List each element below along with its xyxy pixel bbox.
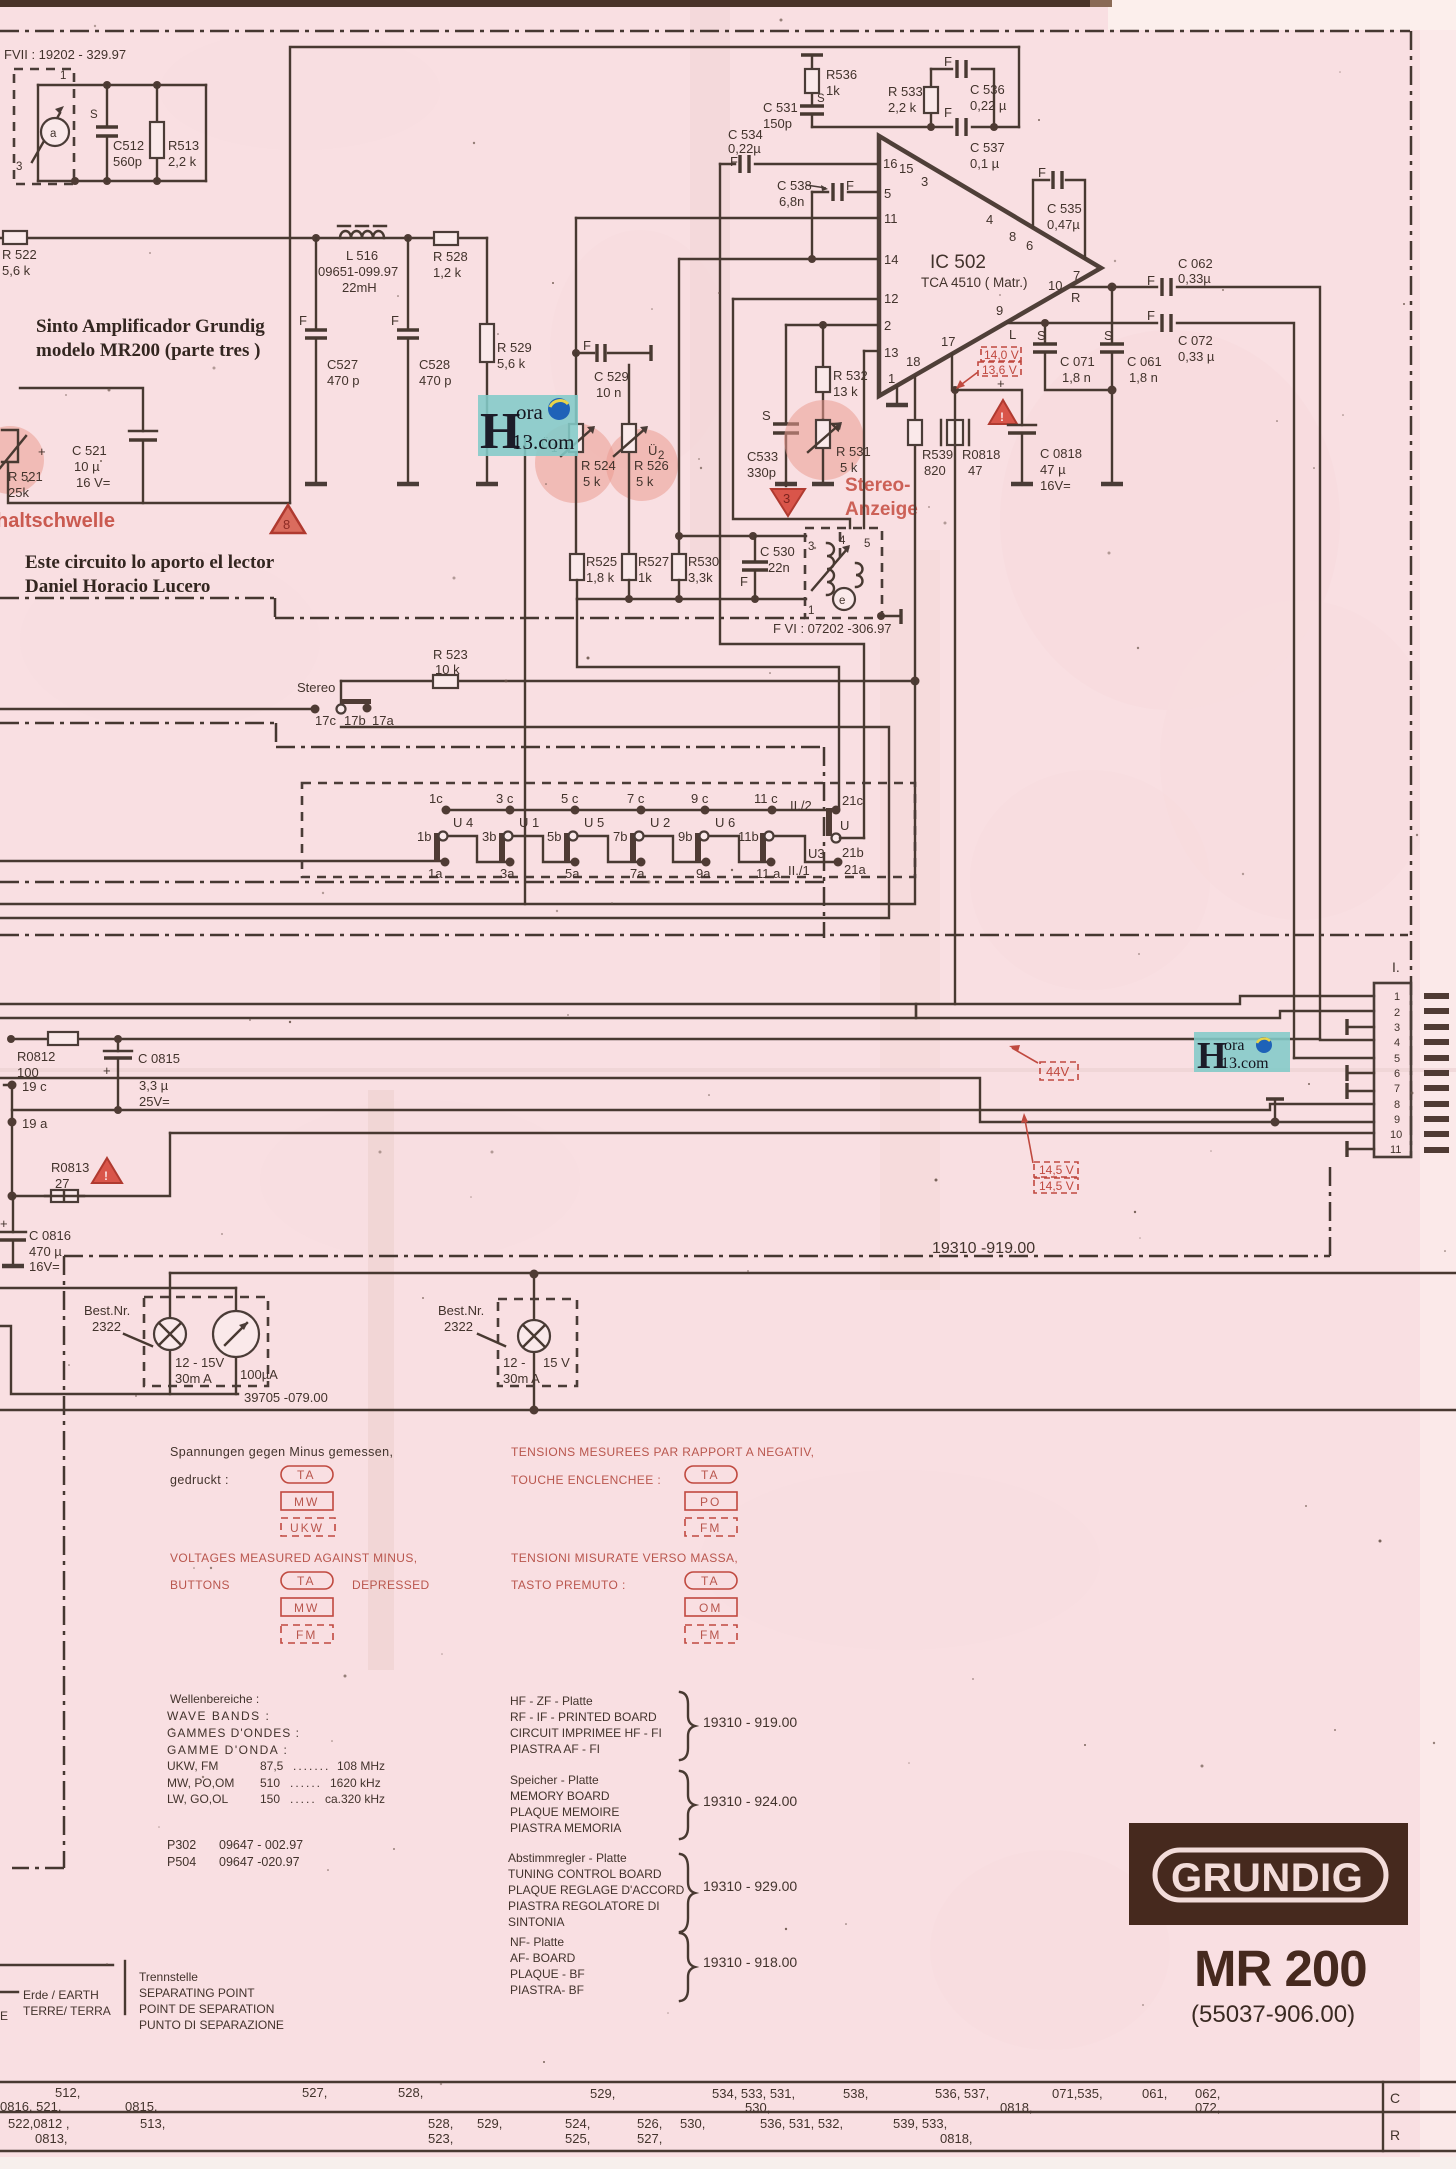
svg-text:HF - ZF - Platte: HF - ZF - Platte <box>510 1694 593 1708</box>
svg-text:534, 533, 531,: 534, 533, 531, <box>712 2086 795 2101</box>
svg-text:PIASTRA MEMORIA: PIASTRA MEMORIA <box>510 1821 621 1835</box>
svg-text:GAMME D'ONDA :: GAMME D'ONDA : <box>167 1743 288 1757</box>
svg-text:18: 18 <box>906 354 920 369</box>
svg-text:529,: 529, <box>590 2086 615 2101</box>
svg-text:21c: 21c <box>842 793 863 808</box>
svg-text:39705 -079.00: 39705 -079.00 <box>244 1390 328 1405</box>
svg-text:TA: TA <box>297 1468 315 1482</box>
svg-text:PIASTRA- BF: PIASTRA- BF <box>510 1983 584 1997</box>
svg-text:WAVE BANDS :: WAVE BANDS : <box>167 1709 270 1723</box>
svg-text:3: 3 <box>808 541 814 553</box>
svg-text:072,: 072, <box>1195 2100 1220 2115</box>
svg-text:12 - 15V: 12 - 15V <box>175 1355 224 1370</box>
svg-text:1c: 1c <box>429 791 443 806</box>
svg-text:0816, 521,: 0816, 521, <box>0 2099 61 2114</box>
svg-text:I.: I. <box>1392 959 1400 975</box>
svg-text:2322: 2322 <box>92 1319 121 1334</box>
svg-text:11 c: 11 c <box>754 791 778 806</box>
svg-text:3: 3 <box>921 174 928 189</box>
svg-text:1a: 1a <box>428 866 443 881</box>
svg-text:TA: TA <box>297 1574 315 1588</box>
svg-text:13,6 V: 13,6 V <box>982 363 1017 377</box>
svg-text:44V: 44V <box>1046 1064 1069 1079</box>
svg-text:S: S <box>762 408 771 423</box>
svg-text:F: F <box>391 313 399 328</box>
svg-text:524,: 524, <box>565 2116 590 2131</box>
svg-text:C533: C533 <box>747 449 778 464</box>
svg-text:17b: 17b <box>344 713 366 728</box>
svg-text:14: 14 <box>884 252 898 267</box>
svg-text:10 µ: 10 µ <box>74 459 100 474</box>
svg-text:4: 4 <box>986 212 993 227</box>
svg-text:13 k: 13 k <box>833 384 858 399</box>
svg-text:C 535: C 535 <box>1047 201 1082 216</box>
svg-text:14,5 V: 14,5 V <box>1039 1163 1074 1177</box>
svg-text:ca.320 kHz: ca.320 kHz <box>325 1792 385 1806</box>
svg-text:6,8n: 6,8n <box>779 194 804 209</box>
svg-text:F: F <box>299 313 307 328</box>
svg-text:Abstimmregler - Platte: Abstimmregler - Platte <box>508 1851 627 1865</box>
svg-text:9 c: 9 c <box>691 791 709 806</box>
svg-text:19310 - 919.00: 19310 - 919.00 <box>703 1714 797 1730</box>
svg-text:C 0818: C 0818 <box>1040 446 1082 461</box>
svg-text:Trennstelle: Trennstelle <box>139 1970 198 1984</box>
svg-text:TCA 4510 ( Matr.): TCA 4510 ( Matr.) <box>921 275 1028 290</box>
svg-text:1k: 1k <box>826 83 840 98</box>
svg-text:DEPRESSED: DEPRESSED <box>352 1578 430 1592</box>
svg-text:10: 10 <box>1048 278 1062 293</box>
svg-text:536, 537,: 536, 537, <box>935 2086 989 2101</box>
svg-text:530,: 530, <box>745 2100 770 2115</box>
svg-text:7 c: 7 c <box>627 791 645 806</box>
svg-text:R539: R539 <box>922 447 953 462</box>
svg-text:TERRE/ TERRA: TERRE/ TERRA <box>23 2004 111 2018</box>
svg-text:0,22 µ: 0,22 µ <box>970 98 1007 113</box>
svg-text:09647 -020.97: 09647 -020.97 <box>219 1855 300 1869</box>
svg-text:ora: ora <box>516 400 543 424</box>
svg-text:1,2 k: 1,2 k <box>433 265 462 280</box>
svg-text:R 526: R 526 <box>634 458 669 473</box>
svg-text:3,3k: 3,3k <box>688 570 713 585</box>
svg-text:528,: 528, <box>398 2085 423 2100</box>
svg-text:C512: C512 <box>113 138 144 153</box>
svg-text:RF - IF - PRINTED BOARD: RF - IF - PRINTED BOARD <box>510 1710 657 1724</box>
svg-text:22n: 22n <box>768 560 790 575</box>
svg-text:F: F <box>846 178 854 193</box>
svg-text:R 529: R 529 <box>497 340 532 355</box>
svg-text:Speicher - Platte: Speicher - Platte <box>510 1773 599 1787</box>
svg-text:C 072: C 072 <box>1178 333 1213 348</box>
svg-text:09647 - 002.97: 09647 - 002.97 <box>219 1838 303 1852</box>
svg-text:PIASTRA AF - FI: PIASTRA AF - FI <box>510 1742 600 1756</box>
svg-text:......: ...... <box>290 1776 322 1790</box>
svg-text:11b: 11b <box>738 829 759 844</box>
svg-text:1b: 1b <box>417 829 431 844</box>
svg-text:4: 4 <box>1394 1037 1400 1049</box>
svg-text:11: 11 <box>884 211 898 226</box>
svg-text:19 c: 19 c <box>22 1079 47 1094</box>
svg-text:TASTO PREMUTO :: TASTO PREMUTO : <box>511 1578 626 1592</box>
svg-text:526,: 526, <box>637 2116 662 2131</box>
svg-text:GRUNDIG: GRUNDIG <box>1171 1856 1363 1900</box>
svg-text:Erde / EARTH: Erde / EARTH <box>23 1988 99 2002</box>
svg-text:F: F <box>1147 273 1155 288</box>
svg-text:TA: TA <box>701 1468 719 1482</box>
svg-text:3: 3 <box>783 491 790 506</box>
svg-text:2: 2 <box>1394 1007 1400 1019</box>
svg-text:GAMMES D'ONDES :: GAMMES D'ONDES : <box>167 1726 300 1740</box>
svg-text:C 530: C 530 <box>760 544 795 559</box>
svg-text:CIRCUIT IMPRIMEE HF - FI: CIRCUIT IMPRIMEE HF - FI <box>510 1726 662 1740</box>
svg-text:R 523: R 523 <box>433 647 468 662</box>
svg-text:19310 - 918.00: 19310 - 918.00 <box>703 1954 797 1970</box>
svg-text:modelo MR200 (parte tres ): modelo MR200 (parte tres ) <box>36 340 260 361</box>
svg-text:R513: R513 <box>168 138 199 153</box>
svg-text:330p: 330p <box>747 465 776 480</box>
svg-text:10 n: 10 n <box>596 385 621 400</box>
svg-text:Stereo: Stereo <box>297 680 335 695</box>
svg-text:UKW, FM: UKW, FM <box>167 1759 218 1773</box>
svg-text:061,: 061, <box>1142 2086 1167 2101</box>
svg-text:13: 13 <box>884 345 898 360</box>
svg-text:071,535,: 071,535, <box>1052 2086 1103 2101</box>
svg-text:1,8 n: 1,8 n <box>1129 370 1158 385</box>
svg-text:2: 2 <box>884 318 891 333</box>
svg-text:6: 6 <box>1394 1068 1400 1080</box>
svg-text:U 6: U 6 <box>715 815 735 830</box>
svg-text:C 529: C 529 <box>594 369 629 384</box>
svg-text:TENSIONS MESUREES PAR RAPPORT: TENSIONS MESUREES PAR RAPPORT A NEGATIV, <box>511 1445 814 1459</box>
svg-text:F: F <box>944 54 952 69</box>
svg-text:C: C <box>1390 2090 1400 2106</box>
svg-text:Best.Nr.: Best.Nr. <box>84 1303 130 1318</box>
svg-text:C528: C528 <box>419 357 450 372</box>
svg-text:09651-099.97: 09651-099.97 <box>318 264 398 279</box>
svg-text:R 531: R 531 <box>836 444 871 459</box>
svg-text:5: 5 <box>864 538 870 550</box>
svg-text:F: F <box>1038 165 1046 180</box>
svg-text:1620 kHz: 1620 kHz <box>330 1776 381 1790</box>
svg-text:15 V: 15 V <box>543 1355 570 1370</box>
svg-text:16V=: 16V= <box>29 1259 60 1274</box>
svg-text:.......: ....... <box>293 1759 330 1773</box>
svg-text:17: 17 <box>941 334 955 349</box>
svg-text:1,8 k: 1,8 k <box>586 570 615 585</box>
svg-text:+: + <box>38 444 46 459</box>
svg-text:PUNTO DI SEPARAZIONE: PUNTO DI SEPARAZIONE <box>139 2018 284 2032</box>
svg-text:SINTONIA: SINTONIA <box>508 1915 564 1929</box>
svg-text:F: F <box>740 574 748 589</box>
svg-text:+: + <box>103 1063 111 1078</box>
svg-text:19310 - 929.00: 19310 - 929.00 <box>703 1878 797 1894</box>
svg-text:7: 7 <box>1394 1083 1400 1095</box>
svg-text:0813,: 0813, <box>35 2131 68 2146</box>
svg-text:470 p: 470 p <box>327 373 360 388</box>
svg-text:12: 12 <box>884 291 898 306</box>
svg-text:TUNING CONTROL BOARD: TUNING CONTROL BOARD <box>508 1867 662 1881</box>
svg-text:R 524: R 524 <box>581 458 616 473</box>
svg-text:TENSIONI MISURATE VERSO MASSA,: TENSIONI MISURATE VERSO MASSA, <box>511 1551 738 1565</box>
svg-text:Best.Nr.: Best.Nr. <box>438 1303 484 1318</box>
svg-text:S: S <box>1104 328 1113 343</box>
svg-text:529,: 529, <box>477 2116 502 2131</box>
svg-text:528,: 528, <box>428 2116 453 2131</box>
svg-text:C 0815: C 0815 <box>138 1051 180 1066</box>
svg-text:!: ! <box>104 1169 108 1183</box>
svg-text:47 µ: 47 µ <box>1040 462 1066 477</box>
svg-text:C 531: C 531 <box>763 100 798 115</box>
svg-text:8: 8 <box>1394 1099 1400 1111</box>
svg-text:8: 8 <box>1009 229 1016 244</box>
svg-text:0818,: 0818, <box>1000 2100 1033 2115</box>
svg-text:513,: 513, <box>140 2116 165 2131</box>
svg-text:NF- Platte: NF- Platte <box>510 1935 564 1949</box>
svg-text:108 MHz: 108 MHz <box>337 1759 385 1773</box>
svg-text:5,6 k: 5,6 k <box>497 356 526 371</box>
svg-text:PIASTRA REGOLATORE DI: PIASTRA REGOLATORE DI <box>508 1899 660 1913</box>
svg-text:Ü: Ü <box>648 443 657 458</box>
svg-text:2322: 2322 <box>444 1319 473 1334</box>
svg-text:22mH: 22mH <box>342 280 377 295</box>
svg-text:5: 5 <box>1394 1053 1400 1065</box>
svg-text:.....: ..... <box>290 1792 317 1806</box>
svg-text:PLAQUE REGLAGE D'ACCORD: PLAQUE REGLAGE D'ACCORD <box>508 1883 685 1897</box>
svg-text:MR 200: MR 200 <box>1194 1940 1367 1997</box>
svg-text:BUTTONS: BUTTONS <box>170 1578 230 1592</box>
svg-text:87,5: 87,5 <box>260 1759 284 1773</box>
svg-text:R 528: R 528 <box>433 249 468 264</box>
svg-text:14,0 V: 14,0 V <box>984 348 1019 362</box>
svg-text:FM: FM <box>700 1628 721 1642</box>
svg-text:530,: 530, <box>680 2116 705 2131</box>
svg-text:522,0812 ,: 522,0812 , <box>8 2116 69 2131</box>
svg-text:527,: 527, <box>302 2085 327 2100</box>
svg-text:+: + <box>997 376 1005 391</box>
svg-text:U3: U3 <box>808 846 825 861</box>
svg-text:FM: FM <box>296 1628 317 1642</box>
svg-text:L 516: L 516 <box>346 248 378 263</box>
svg-text:UKW: UKW <box>290 1521 324 1535</box>
svg-text:27: 27 <box>55 1176 69 1191</box>
svg-text:Wellenbereiche :: Wellenbereiche : <box>170 1692 259 1706</box>
svg-text:(55037-906.00): (55037-906.00) <box>1191 2001 1355 2028</box>
svg-text:ora: ora <box>1224 1037 1244 1054</box>
svg-text:Stereo-: Stereo- <box>845 475 910 496</box>
svg-text:P504: P504 <box>167 1855 196 1869</box>
svg-text:15: 15 <box>899 161 913 176</box>
svg-text:5a: 5a <box>565 866 580 881</box>
svg-text:1k: 1k <box>638 570 652 585</box>
svg-text:C 521: C 521 <box>72 443 107 458</box>
svg-text:25k: 25k <box>8 485 29 500</box>
svg-text:LW, GO,OL: LW, GO,OL <box>167 1792 228 1806</box>
svg-text:R 532: R 532 <box>833 368 868 383</box>
svg-text:haltschwelle: haltschwelle <box>0 510 115 532</box>
svg-text:R0818: R0818 <box>962 447 1000 462</box>
svg-text:510: 510 <box>260 1776 280 1790</box>
svg-text:3b: 3b <box>482 829 496 844</box>
svg-text:IC 502: IC 502 <box>930 252 986 273</box>
svg-text:1: 1 <box>888 371 895 386</box>
svg-text:R: R <box>1071 290 1080 305</box>
svg-text:e: e <box>839 595 845 607</box>
svg-text:R0812: R0812 <box>17 1049 55 1064</box>
svg-text:C 061: C 061 <box>1127 354 1162 369</box>
svg-text:II./1: II./1 <box>788 863 810 878</box>
svg-text:527,: 527, <box>637 2131 662 2146</box>
svg-text:R: R <box>1390 2127 1400 2143</box>
svg-text:560p: 560p <box>113 154 142 169</box>
svg-text:14,5 V: 14,5 V <box>1039 1179 1074 1193</box>
svg-text:FVII : 19202 - 329.97: FVII : 19202 - 329.97 <box>4 47 126 62</box>
svg-text:0815,: 0815, <box>125 2099 158 2114</box>
svg-text:U: U <box>840 818 849 833</box>
svg-text:C527: C527 <box>327 357 358 372</box>
svg-text:1: 1 <box>1394 991 1400 1003</box>
svg-text:13.com: 13.com <box>1221 1055 1269 1072</box>
svg-text:7: 7 <box>1073 268 1080 283</box>
svg-text:470 p: 470 p <box>419 373 452 388</box>
svg-text:536, 531, 532,: 536, 531, 532, <box>760 2116 843 2131</box>
svg-text:R525: R525 <box>586 554 617 569</box>
svg-text:0,33 µ: 0,33 µ <box>1178 349 1215 364</box>
svg-text:a: a <box>50 128 57 140</box>
svg-text:30m A: 30m A <box>175 1371 212 1386</box>
svg-text:F: F <box>583 338 591 353</box>
svg-text:47: 47 <box>968 463 982 478</box>
svg-text:R530: R530 <box>688 554 719 569</box>
svg-text:9: 9 <box>1394 1114 1400 1126</box>
svg-text:TA: TA <box>701 1574 719 1588</box>
svg-text:5,6 k: 5,6 k <box>2 263 31 278</box>
svg-text:R527: R527 <box>638 554 669 569</box>
svg-text:5 k: 5 k <box>840 460 858 475</box>
svg-text:SEPARATING POINT: SEPARATING POINT <box>139 1986 255 2000</box>
svg-text:3: 3 <box>16 161 22 173</box>
svg-text:C 062: C 062 <box>1178 256 1213 271</box>
svg-text:19 a: 19 a <box>22 1116 48 1131</box>
svg-text:1,8 n: 1,8 n <box>1062 370 1091 385</box>
svg-text:gedruckt :: gedruckt : <box>170 1473 229 1487</box>
svg-text:E: E <box>0 2009 8 2023</box>
svg-text:2,2 k: 2,2 k <box>168 154 197 169</box>
svg-text:L: L <box>1009 327 1016 342</box>
svg-text:25V=: 25V= <box>139 1094 170 1109</box>
svg-text:100µA: 100µA <box>240 1367 278 1382</box>
svg-text:17a: 17a <box>372 713 394 728</box>
svg-text:13.com: 13.com <box>512 430 574 454</box>
svg-text:523,: 523, <box>428 2131 453 2146</box>
svg-text:0,33µ: 0,33µ <box>1178 271 1211 286</box>
svg-text:19310 -919.00: 19310 -919.00 <box>932 1240 1035 1257</box>
svg-text:U 4: U 4 <box>453 815 473 830</box>
svg-text:470 µ: 470 µ <box>29 1244 62 1259</box>
svg-text:AF- BOARD: AF- BOARD <box>510 1951 576 1965</box>
svg-text:F: F <box>944 105 952 120</box>
svg-text:5 k: 5 k <box>636 474 654 489</box>
svg-text:+: + <box>0 1216 8 1231</box>
svg-text:3: 3 <box>1394 1022 1400 1034</box>
svg-text:Spannungen gegen Minus gemesse: Spannungen gegen Minus gemessen, <box>170 1445 393 1459</box>
svg-text:Daniel Horacio Lucero: Daniel Horacio Lucero <box>25 576 210 597</box>
svg-text:MW, PO,OM: MW, PO,OM <box>167 1776 234 1790</box>
svg-text:9b: 9b <box>678 829 692 844</box>
svg-text:U 1: U 1 <box>519 815 539 830</box>
svg-text:150: 150 <box>260 1792 280 1806</box>
svg-text:21b: 21b <box>842 845 864 860</box>
svg-text:10 k: 10 k <box>435 662 460 677</box>
svg-text:S: S <box>90 109 98 121</box>
svg-text:C 536: C 536 <box>970 82 1005 97</box>
svg-text:R536: R536 <box>826 67 857 82</box>
svg-text:VOLTAGES MEASURED AGAINST MINU: VOLTAGES MEASURED AGAINST MINUS, <box>170 1551 418 1565</box>
svg-text:538,: 538, <box>843 2086 868 2101</box>
svg-text:539, 533,: 539, 533, <box>893 2116 947 2131</box>
svg-text:512,: 512, <box>55 2085 80 2100</box>
svg-text:C 0816: C 0816 <box>29 1228 71 1243</box>
svg-text:U 2: U 2 <box>650 815 670 830</box>
svg-text:3 c: 3 c <box>496 791 514 806</box>
svg-text:1: 1 <box>60 70 66 82</box>
svg-text:11 a: 11 a <box>756 866 781 881</box>
svg-text:150p: 150p <box>763 116 792 131</box>
svg-text:6: 6 <box>1026 238 1033 253</box>
svg-text:0,1 µ: 0,1 µ <box>970 156 1000 171</box>
svg-text:F: F <box>730 154 738 169</box>
svg-text:R0813: R0813 <box>51 1160 89 1175</box>
svg-text:7a: 7a <box>630 866 645 881</box>
svg-text:3a: 3a <box>500 866 515 881</box>
svg-text:3,3 µ: 3,3 µ <box>139 1078 169 1093</box>
svg-text:C 537: C 537 <box>970 140 1005 155</box>
svg-text:P302: P302 <box>167 1838 196 1852</box>
svg-text:19310 - 924.00: 19310 - 924.00 <box>703 1793 797 1809</box>
svg-text:9a: 9a <box>696 866 711 881</box>
svg-text:12 -: 12 - <box>503 1355 525 1370</box>
svg-text:!: ! <box>1000 410 1004 424</box>
svg-text:525,: 525, <box>565 2131 590 2146</box>
svg-text:5: 5 <box>884 186 891 201</box>
svg-text:PLAQUE MEMOIRE: PLAQUE MEMOIRE <box>510 1805 619 1819</box>
svg-text:MEMORY BOARD: MEMORY BOARD <box>510 1789 610 1803</box>
svg-text:16V=: 16V= <box>1040 478 1071 493</box>
svg-text:R 533: R 533 <box>888 84 923 99</box>
svg-text:S: S <box>817 93 825 105</box>
svg-text:062,: 062, <box>1195 2086 1220 2101</box>
svg-text:U 5: U 5 <box>584 815 604 830</box>
svg-text:5 c: 5 c <box>561 791 579 806</box>
svg-text:16 V=: 16 V= <box>76 475 110 490</box>
svg-text:Este circuito lo aporto el lec: Este circuito lo aporto el lector <box>25 552 275 573</box>
svg-text:II./2: II./2 <box>790 798 812 813</box>
svg-text:10: 10 <box>1390 1129 1402 1141</box>
svg-text:820: 820 <box>924 463 946 478</box>
svg-text:PLAQUE - BF: PLAQUE - BF <box>510 1967 585 1981</box>
svg-text:0818,: 0818, <box>940 2131 973 2146</box>
svg-text:5b: 5b <box>547 829 561 844</box>
svg-text:MW: MW <box>294 1601 319 1615</box>
svg-text:5 k: 5 k <box>583 474 601 489</box>
svg-text:17c: 17c <box>315 713 336 728</box>
svg-text:PO: PO <box>700 1495 721 1509</box>
svg-text:C 071: C 071 <box>1060 354 1095 369</box>
svg-text:Anzeige: Anzeige <box>845 499 918 520</box>
svg-text:9: 9 <box>996 303 1003 318</box>
svg-text:Sinto Amplificador Grundig: Sinto Amplificador Grundig <box>36 316 265 337</box>
svg-text:POINT DE SEPARATION: POINT DE SEPARATION <box>139 2002 274 2016</box>
svg-text:2,2 k: 2,2 k <box>888 100 917 115</box>
svg-text:TOUCHE ENCLENCHEE :: TOUCHE ENCLENCHEE : <box>511 1473 661 1487</box>
